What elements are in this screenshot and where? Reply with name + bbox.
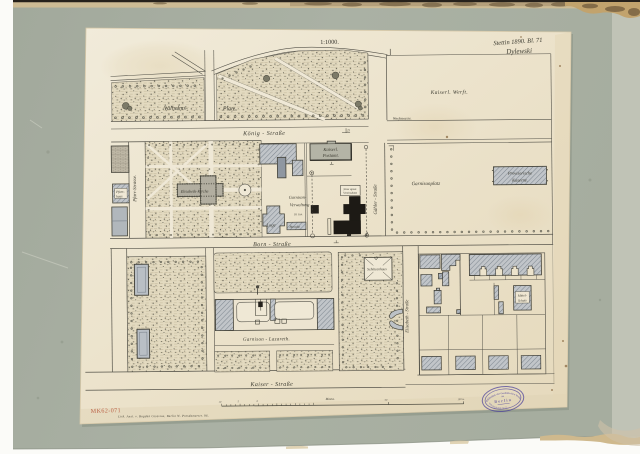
svg-text:MK62-071: MK62-071 xyxy=(91,408,121,415)
svg-text:Kaiser - Straße: Kaiser - Straße xyxy=(249,381,293,388)
svg-text:Verwaltung: Verwaltung xyxy=(290,202,310,207)
svg-text:Garnisonplatz: Garnisonplatz xyxy=(412,182,441,187)
svg-text:Postamt.: Postamt. xyxy=(322,153,339,158)
svg-text:Kaiserl.: Kaiserl. xyxy=(322,147,338,152)
svg-text:Dylewski: Dylewski xyxy=(505,47,532,56)
svg-text:Vereinshaus: Vereinshaus xyxy=(343,191,358,195)
svg-text:18. Jan.: 18. Jan. xyxy=(294,213,303,216)
svg-text:Schützenhaus: Schützenhaus xyxy=(367,267,387,271)
svg-text:Pfarr-: Pfarr- xyxy=(115,190,124,194)
svg-text:Born - Straße: Born - Straße xyxy=(253,241,291,248)
svg-text:haus: haus xyxy=(116,194,123,198)
svg-text:Wilhelms-: Wilhelms- xyxy=(164,106,188,112)
svg-text:1:1000.: 1:1000. xyxy=(320,39,339,46)
svg-text:Provisorische: Provisorische xyxy=(507,170,532,175)
svg-text:Pfarr-Strasse.: Pfarr-Strasse. xyxy=(133,175,138,203)
svg-text:Werftstrasse.: Werftstrasse. xyxy=(393,117,412,121)
svg-text:100 m.: 100 m. xyxy=(458,398,465,401)
svg-text:Maass.: Maass. xyxy=(325,397,335,401)
svg-text:Mittel-: Mittel- xyxy=(517,294,527,298)
svg-text:Kaserne.: Kaserne. xyxy=(511,178,528,183)
svg-text:Platz.: Platz. xyxy=(222,106,237,112)
svg-text:Elisabeth-Kirche: Elisabeth-Kirche xyxy=(180,189,209,194)
svg-text:Garnison - Lazareth.: Garnison - Lazareth. xyxy=(243,337,290,342)
svg-text:Schule: Schule xyxy=(518,299,527,303)
svg-text:Gähler - Straße: Gähler - Straße xyxy=(374,184,379,215)
svg-text:Elisabeth - Straße: Elisabeth - Straße xyxy=(404,300,409,334)
svg-text:König - Straße: König - Straße xyxy=(242,130,285,137)
svg-text:Loge: Loge xyxy=(265,222,275,227)
svg-text:Kaiserl. Werft.: Kaiserl. Werft. xyxy=(430,89,468,96)
svg-text:Baracke: Baracke xyxy=(289,225,300,229)
svg-text:Garnison-: Garnison- xyxy=(289,195,307,200)
